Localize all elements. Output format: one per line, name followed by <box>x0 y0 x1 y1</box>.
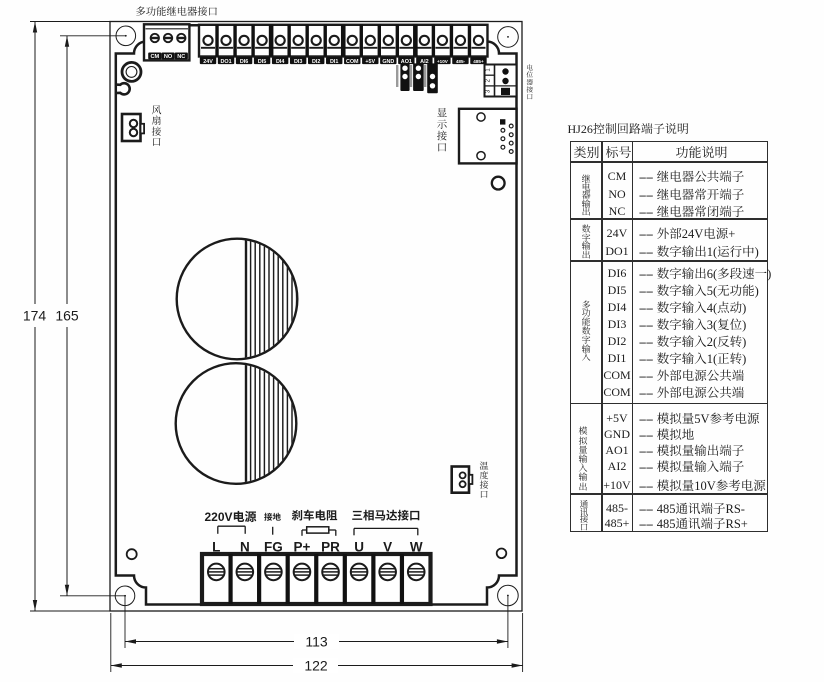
svg-text:L: L <box>212 540 220 555</box>
svg-text:DO1: DO1 <box>220 59 231 65</box>
svg-text:485+: 485+ <box>473 59 484 64</box>
svg-text:DI3: DI3 <box>294 59 302 65</box>
svg-text:485-: 485- <box>456 59 466 64</box>
svg-text:DI5: DI5 <box>258 59 266 65</box>
svg-text:口: 口 <box>437 140 448 155</box>
svg-text:+10V: +10V <box>437 59 449 64</box>
svg-text:AI2: AI2 <box>420 59 428 65</box>
svg-text:122: 122 <box>304 658 328 674</box>
svg-text:COM: COM <box>346 59 359 65</box>
svg-text:24V: 24V <box>203 59 213 65</box>
svg-text:P+: P+ <box>294 540 311 555</box>
svg-text:DI2: DI2 <box>312 59 320 65</box>
svg-text:DI1: DI1 <box>330 59 338 65</box>
svg-text:DI6: DI6 <box>240 59 248 65</box>
svg-text:接地: 接地 <box>264 511 282 523</box>
svg-text:口: 口 <box>479 487 488 500</box>
svg-text:113: 113 <box>305 634 328 650</box>
svg-text:NO: NO <box>164 54 173 60</box>
svg-text:PR: PR <box>321 540 340 555</box>
svg-text:CM: CM <box>150 54 159 60</box>
svg-text:DI4: DI4 <box>276 59 284 65</box>
svg-text:AO1: AO1 <box>401 59 412 65</box>
svg-text:刹车电阻: 刹车电阻 <box>292 508 338 524</box>
svg-text:V: V <box>383 540 392 555</box>
svg-text:+5V: +5V <box>365 59 375 65</box>
svg-text:口: 口 <box>526 91 533 101</box>
svg-text:FG: FG <box>264 540 283 555</box>
svg-text:NC: NC <box>177 54 185 60</box>
svg-text:220V电源: 220V电源 <box>204 508 256 525</box>
svg-text:N: N <box>240 540 250 555</box>
svg-text:165: 165 <box>55 308 79 324</box>
svg-text:W: W <box>410 540 423 555</box>
svg-text:GND: GND <box>382 59 394 65</box>
svg-text:U: U <box>354 540 364 555</box>
svg-text:口: 口 <box>152 133 162 148</box>
svg-text:174: 174 <box>23 308 47 324</box>
svg-text:多功能继电器接口: 多功能继电器接口 <box>136 3 218 18</box>
svg-text:三相马达接口: 三相马达接口 <box>352 508 421 524</box>
